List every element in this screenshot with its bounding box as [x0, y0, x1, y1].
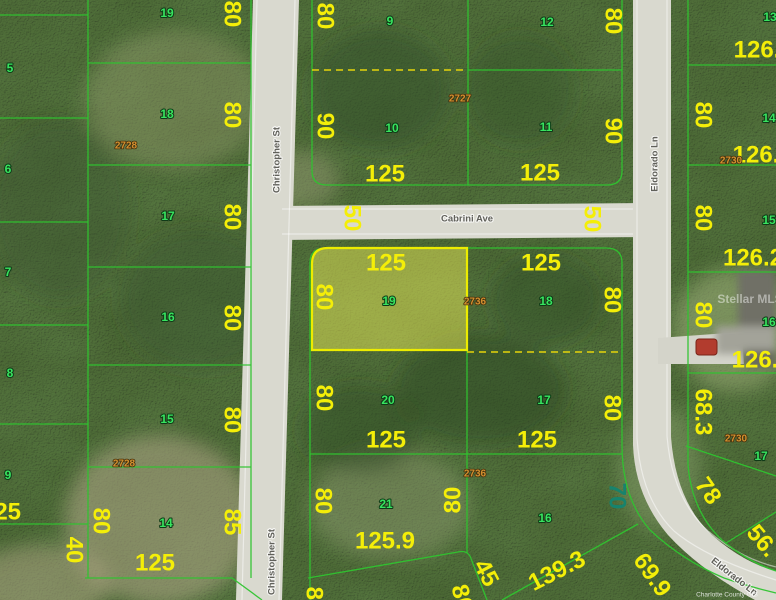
dimension-label: 80 — [690, 102, 717, 129]
dimension-label: 126. — [734, 37, 776, 64]
dimension-label: 50 — [339, 205, 366, 232]
lot-number: 9 — [387, 14, 394, 28]
street-name-label: Eldorado Ln — [650, 136, 661, 192]
dimension-label: 125 — [366, 427, 406, 454]
lot-number: 18 — [539, 294, 553, 308]
dimension-label: 85 — [219, 509, 246, 536]
dimension-label: 80 — [312, 3, 339, 30]
lot-number: 20 — [381, 393, 395, 407]
dimension-label: 80 — [219, 102, 246, 129]
dimension-label: 80 — [690, 302, 717, 329]
dimension-label: 40 — [61, 537, 88, 564]
parcel-map-svg: 8080808080858040125125809080901251255050… — [0, 0, 776, 600]
lot-number: 16 — [538, 511, 552, 525]
dimension-label: 125 — [521, 250, 561, 277]
dimension-label: 80 — [600, 8, 627, 35]
dimension-label: 80 — [311, 385, 338, 412]
dimension-label: 90 — [312, 113, 339, 140]
dimension-label: 125 — [517, 427, 557, 454]
block-number: 2730 — [725, 434, 748, 445]
lot-number: 17 — [754, 449, 768, 463]
lot-number: 14 — [762, 111, 776, 125]
dimension-label: 80 — [219, 305, 246, 332]
dimension-label: 68.3 — [690, 389, 717, 436]
lot-number: 21 — [379, 497, 393, 511]
block-number: 2727 — [449, 94, 472, 105]
lot-number: 14 — [159, 516, 173, 530]
dimension-label: 125 — [366, 250, 406, 277]
dimension-label: 80 — [219, 204, 246, 231]
lot-number: 17 — [161, 209, 175, 223]
lot-number: 15 — [160, 412, 174, 426]
lot-number: 18 — [160, 107, 174, 121]
block-number: 2728 — [113, 459, 136, 470]
lot-number: 6 — [5, 162, 12, 176]
lot-number: 15 — [762, 213, 776, 227]
dimension-label: 80 — [599, 287, 626, 314]
dimension-label: 80 — [440, 487, 467, 514]
lot-number: 19 — [382, 294, 396, 308]
dimension-label: 80 — [219, 407, 246, 434]
dimension-label: 80 — [599, 395, 626, 422]
dimension-label: 125 — [365, 161, 405, 188]
lot-number: 5 — [7, 61, 14, 75]
block-number: 2728 — [115, 141, 138, 152]
dimension-label: 125 — [520, 160, 560, 187]
dimension-label: 125 — [0, 499, 21, 526]
dimension-label: 80 — [310, 488, 337, 515]
lot-number: 17 — [537, 393, 551, 407]
watermark: Charlotte County GIS — [696, 592, 758, 599]
dimension-label: 80 — [88, 508, 115, 535]
dimension-label: 50 — [579, 206, 606, 233]
street-name-label: Christopher St — [267, 528, 278, 595]
lot-number: 9 — [5, 468, 12, 482]
scrub-patch — [85, 30, 265, 170]
dimension-label: 70 — [604, 483, 631, 510]
parcel-map[interactable]: 8080808080858040125125809080901251255050… — [0, 0, 776, 600]
dimension-label: 125.9 — [355, 528, 415, 555]
parked-car — [696, 339, 717, 355]
street-name-label: Christopher St — [272, 126, 283, 193]
dimension-label: 126. — [732, 347, 776, 374]
watermark: Stellar MLS — [717, 292, 776, 306]
dimension-label: 80 — [301, 587, 328, 600]
lot-number: 16 — [161, 310, 175, 324]
dimension-label: 80 — [219, 1, 246, 28]
lot-number: 8 — [7, 366, 14, 380]
lot-number: 16 — [762, 315, 776, 329]
tree-canopy — [465, 35, 575, 145]
block-number: 2736 — [464, 469, 487, 480]
lot-number: 10 — [385, 121, 399, 135]
dimension-label: 90 — [600, 118, 627, 145]
dimension-label: 126.2 — [723, 245, 776, 272]
street-name-label: Cabrini Ave — [441, 214, 493, 225]
block-number: 2736 — [464, 297, 487, 308]
lot-number: 7 — [5, 265, 12, 279]
lot-number: 19 — [160, 6, 174, 20]
block-number: 2730 — [720, 156, 743, 167]
lot-number: 12 — [540, 15, 554, 29]
dimension-label: 80 — [311, 284, 338, 311]
lot-number: 13 — [763, 10, 776, 24]
dimension-label: 125 — [135, 550, 175, 577]
lot-number: 11 — [540, 120, 553, 134]
dimension-label: 80 — [690, 205, 717, 232]
